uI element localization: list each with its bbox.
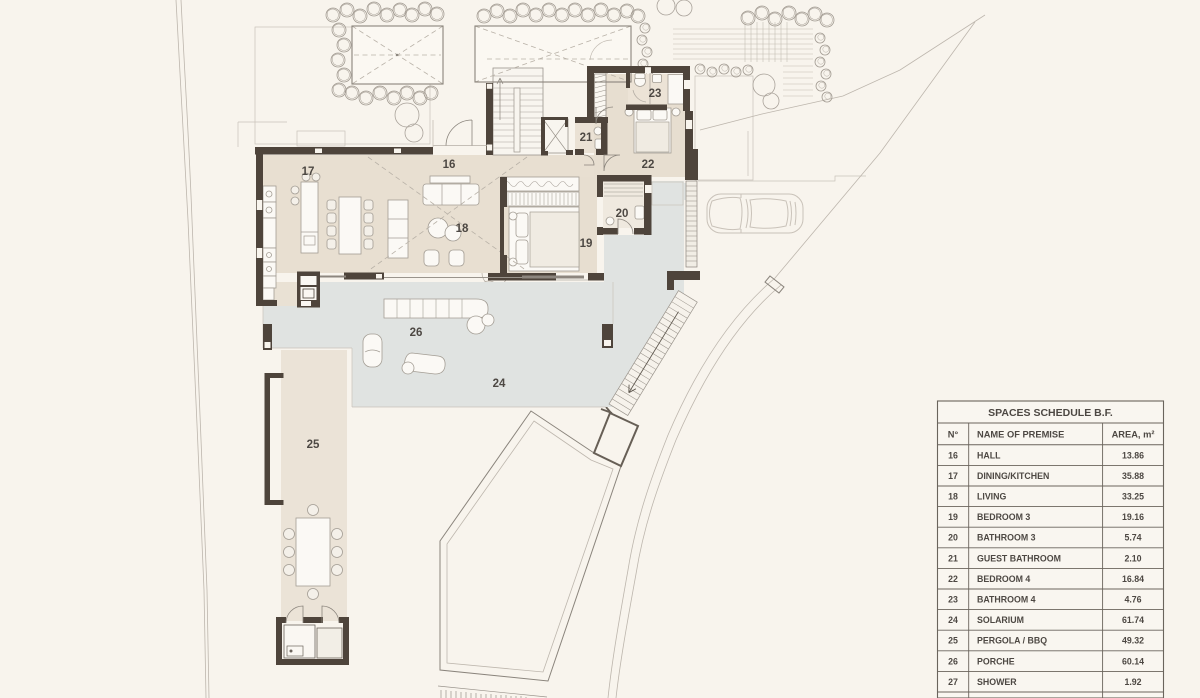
svg-text:19.16: 19.16	[1122, 512, 1144, 522]
svg-text:PERGOLA / BBQ: PERGOLA / BBQ	[977, 636, 1047, 646]
svg-text:BEDROOM 4: BEDROOM 4	[977, 574, 1030, 584]
svg-text:18: 18	[456, 223, 469, 235]
svg-text:21: 21	[948, 553, 958, 563]
svg-text:HALL: HALL	[977, 451, 1001, 461]
svg-text:24: 24	[948, 615, 958, 625]
svg-text:BATHROOM 4: BATHROOM 4	[977, 595, 1036, 605]
svg-text:20: 20	[948, 533, 958, 543]
svg-text:23: 23	[948, 595, 958, 605]
svg-text:5.74: 5.74	[1124, 533, 1141, 543]
svg-text:22: 22	[948, 574, 958, 584]
svg-text:1.92: 1.92	[1124, 677, 1141, 687]
svg-text:27: 27	[948, 677, 958, 687]
svg-text:49.32: 49.32	[1122, 636, 1144, 646]
svg-text:N°: N°	[948, 430, 959, 440]
svg-text:60.14: 60.14	[1122, 656, 1144, 666]
svg-text:33.25: 33.25	[1122, 492, 1144, 502]
svg-text:23: 23	[649, 88, 662, 100]
svg-text:AREA, m²: AREA, m²	[1112, 430, 1155, 440]
svg-text:SHOWER: SHOWER	[977, 677, 1017, 687]
svg-text:17: 17	[302, 166, 315, 178]
svg-text:61.74: 61.74	[1122, 615, 1144, 625]
svg-text:LIVING: LIVING	[977, 492, 1006, 502]
svg-text:17: 17	[948, 471, 958, 481]
svg-text:BEDROOM 3: BEDROOM 3	[977, 512, 1030, 522]
svg-text:4.76: 4.76	[1124, 595, 1141, 605]
svg-text:SPACES SCHEDULE B.F.: SPACES SCHEDULE B.F.	[988, 407, 1113, 419]
svg-text:24: 24	[493, 378, 506, 390]
svg-text:18: 18	[948, 492, 958, 502]
svg-text:21: 21	[580, 132, 593, 144]
svg-text:16: 16	[948, 451, 958, 461]
svg-text:22: 22	[642, 159, 655, 171]
svg-text:19: 19	[948, 512, 958, 522]
svg-text:25: 25	[948, 636, 958, 646]
svg-text:26: 26	[410, 327, 423, 339]
svg-text:20: 20	[616, 208, 629, 220]
svg-text:35.88: 35.88	[1122, 471, 1144, 481]
svg-text:2.10: 2.10	[1124, 553, 1141, 563]
svg-text:DINING/KITCHEN: DINING/KITCHEN	[977, 471, 1049, 481]
svg-text:26: 26	[948, 656, 958, 666]
svg-text:25: 25	[307, 439, 320, 451]
svg-text:NAME OF PREMISE: NAME OF PREMISE	[977, 430, 1064, 440]
svg-text:GUEST BATHROOM: GUEST BATHROOM	[977, 553, 1061, 563]
svg-text:19: 19	[580, 238, 593, 250]
svg-text:SOLARIUM: SOLARIUM	[977, 615, 1024, 625]
svg-text:16: 16	[443, 159, 456, 171]
svg-text:BATHROOM 3: BATHROOM 3	[977, 533, 1036, 543]
svg-text:16.84: 16.84	[1122, 574, 1144, 584]
svg-text:13.86: 13.86	[1122, 451, 1144, 461]
svg-text:PORCHE: PORCHE	[977, 656, 1015, 666]
